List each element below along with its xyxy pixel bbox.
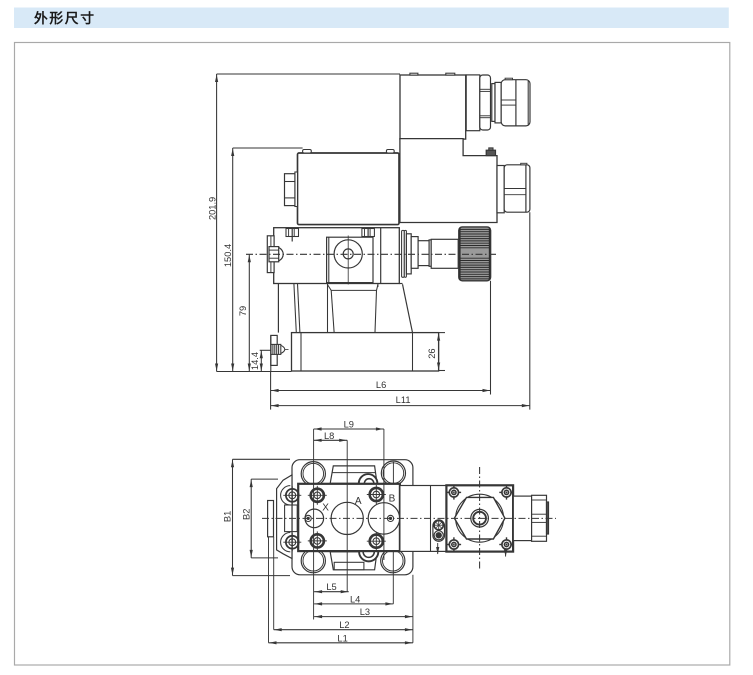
svg-text:B2: B2 (242, 509, 252, 520)
svg-text:79: 79 (238, 306, 248, 316)
svg-text:X: X (322, 503, 329, 514)
svg-text:L8: L8 (324, 431, 334, 441)
svg-text:L4: L4 (350, 594, 360, 604)
svg-text:L6: L6 (376, 380, 386, 390)
svg-text:A: A (355, 496, 362, 507)
svg-text:L3: L3 (360, 607, 370, 617)
svg-text:26: 26 (427, 348, 437, 358)
svg-text:L11: L11 (396, 395, 411, 405)
svg-text:L1: L1 (337, 633, 347, 643)
svg-text:201.9: 201.9 (207, 197, 217, 220)
svg-text:14.4: 14.4 (250, 352, 260, 370)
svg-text:L5: L5 (326, 582, 336, 592)
svg-text:B: B (389, 493, 396, 504)
svg-text:B1: B1 (222, 511, 232, 522)
svg-text:L2: L2 (339, 620, 349, 630)
svg-text:150.4: 150.4 (223, 244, 233, 267)
svg-text:外形尺寸: 外形尺寸 (34, 10, 96, 26)
svg-text:L9: L9 (344, 419, 354, 429)
